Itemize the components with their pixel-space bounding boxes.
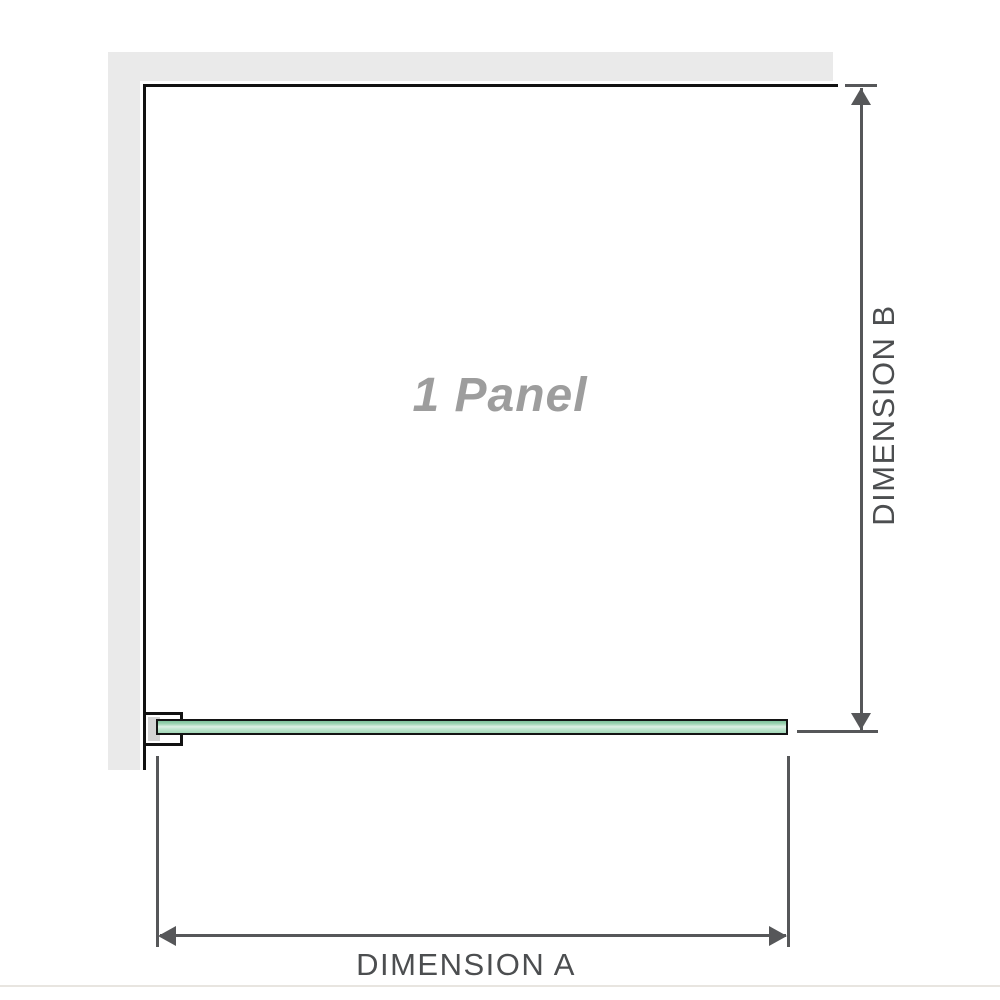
- bottom-page-rule: [0, 985, 1000, 987]
- panel-top-edge: [143, 84, 838, 87]
- arrow-down-icon: [851, 713, 871, 730]
- glass-panel-strip: [156, 719, 788, 735]
- panel-count-label: 1 Panel: [350, 368, 650, 424]
- dimension-a-line: [160, 934, 786, 937]
- arrow-up-icon: [851, 88, 871, 105]
- dimension-a-extension-right: [787, 756, 790, 947]
- panel-dimension-diagram: 1 Panel DIMENSION B DIMENSION A: [0, 0, 1000, 1000]
- arrow-left-icon: [158, 926, 176, 946]
- dimension-a-extension-left: [156, 756, 159, 947]
- wall-top: [108, 52, 833, 81]
- dimension-b-top-tick: [845, 84, 877, 87]
- dimension-b-line: [860, 88, 863, 730]
- panel-left-edge: [143, 84, 146, 770]
- dimension-b-label: DIMENSION B: [869, 265, 899, 565]
- arrow-right-icon: [769, 926, 787, 946]
- dimension-b-bottom-tick: [797, 730, 878, 733]
- wall-left: [108, 52, 140, 770]
- dimension-a-label: DIMENSION A: [316, 946, 616, 984]
